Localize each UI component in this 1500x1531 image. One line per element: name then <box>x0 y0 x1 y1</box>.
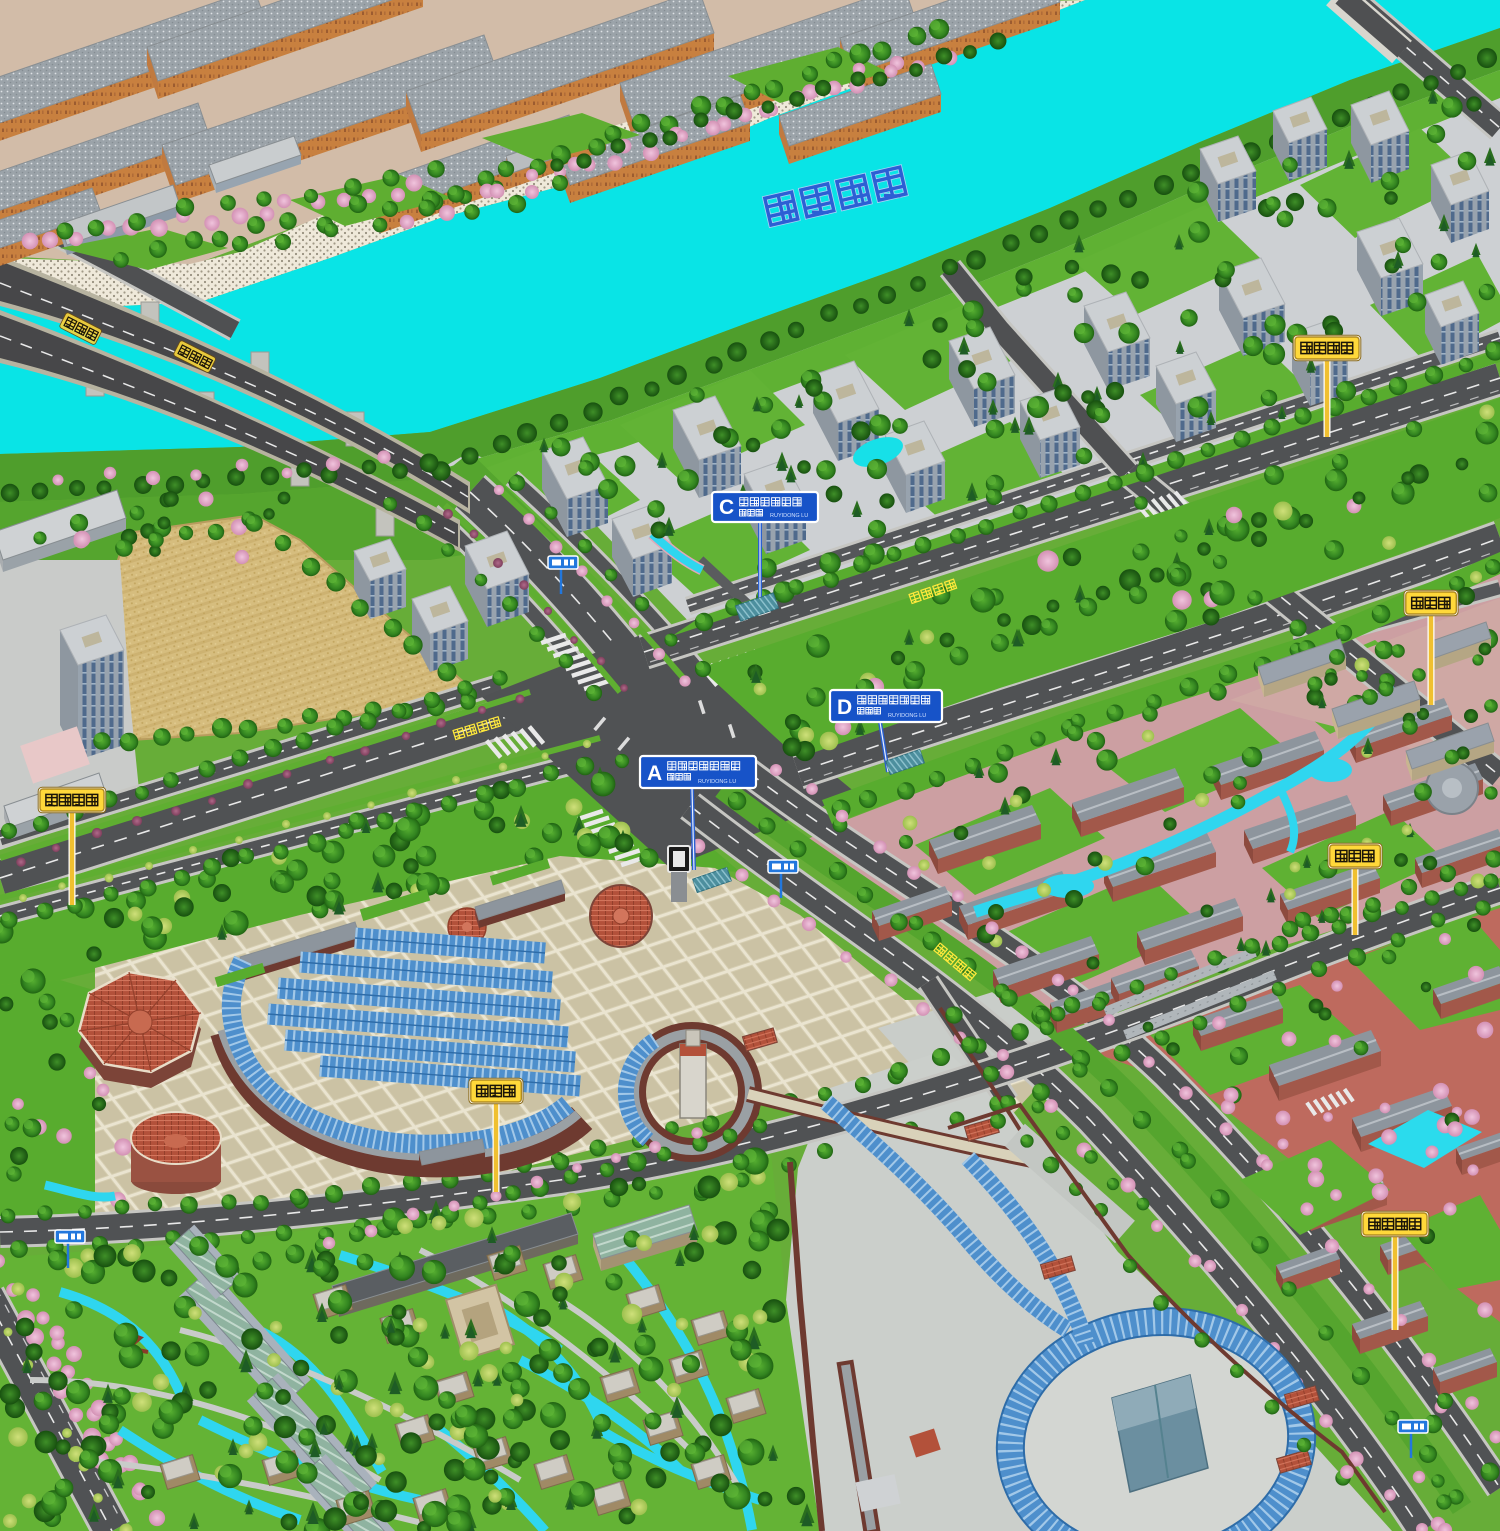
svg-text:C: C <box>719 496 734 519</box>
svg-text:A: A <box>647 762 662 785</box>
svg-text:D: D <box>837 696 852 719</box>
svg-text:RUYIDONG LU: RUYIDONG LU <box>698 779 736 785</box>
svg-text:RUYIDONG LU: RUYIDONG LU <box>770 513 808 519</box>
svg-text:RUYIDONG LU: RUYIDONG LU <box>888 713 926 719</box>
